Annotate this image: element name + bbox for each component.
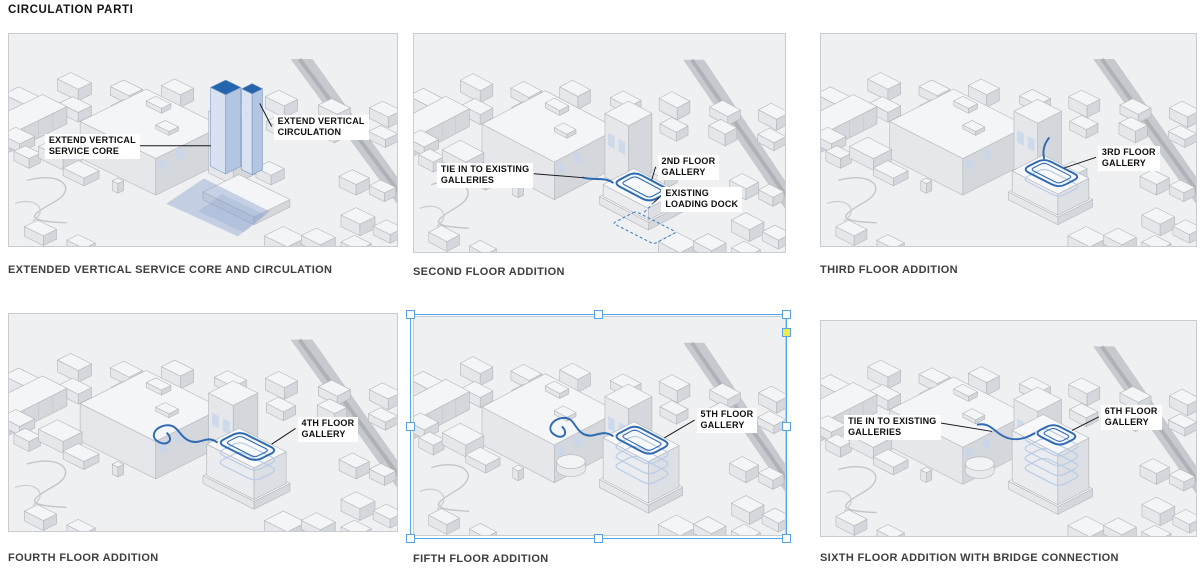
panel-caption: SECOND FLOOR ADDITION bbox=[413, 266, 565, 278]
selection-handle-bottom-right[interactable] bbox=[782, 534, 791, 543]
diagram-label: TIE IN TO EXISTING GALLERIES bbox=[844, 415, 940, 440]
panel-second-floor-addition[interactable]: TIE IN TO EXISTING GALLERIES2ND FLOOR GA… bbox=[413, 33, 786, 253]
panel-caption: THIRD FLOOR ADDITION bbox=[820, 264, 958, 276]
axonometric-diagram-3: 3RD FLOOR GALLERY bbox=[820, 33, 1197, 247]
panel-caption: EXTENDED VERTICAL SERVICE CORE AND CIRCU… bbox=[8, 264, 332, 276]
diagram-label: TIE IN TO EXISTING GALLERIES bbox=[437, 163, 533, 188]
axonometric-diagram-4: 4TH FLOOR GALLERY bbox=[8, 313, 398, 532]
selection-handle-middle-right[interactable] bbox=[782, 422, 791, 431]
diagram-label: 6TH FLOOR GALLERY bbox=[1101, 405, 1162, 430]
panel-third-floor-addition[interactable]: 3RD FLOOR GALLERY THIRD FLOOR ADDITION bbox=[820, 33, 1197, 247]
axonometric-diagram-1: EXTEND VERTICAL SERVICE COREEXTEND VERTI… bbox=[8, 33, 398, 247]
presentation-board: CIRCULATION PARTI EXTEND VERTICAL SERVIC… bbox=[0, 0, 1200, 568]
panel-fourth-floor-addition[interactable]: 4TH FLOOR GALLERY FOURTH FLOOR ADDITION bbox=[8, 313, 398, 532]
panel-caption: FIFTH FLOOR ADDITION bbox=[413, 553, 549, 565]
diagram-label: 3RD FLOOR GALLERY bbox=[1098, 146, 1160, 171]
selection-handle-top-middle[interactable] bbox=[594, 310, 603, 319]
selection-handle-top-right[interactable] bbox=[782, 310, 791, 319]
selection-handle-middle-left[interactable] bbox=[406, 422, 415, 431]
diagram-label: 4TH FLOOR GALLERY bbox=[298, 417, 359, 442]
selection-handle-top-left[interactable] bbox=[406, 310, 415, 319]
selection-handle-bottom-left[interactable] bbox=[406, 534, 415, 543]
axonometric-diagram-6: TIE IN TO EXISTING GALLERIES6TH FLOOR GA… bbox=[820, 320, 1197, 537]
selection-handle-bottom-middle[interactable] bbox=[594, 534, 603, 543]
axon-scene bbox=[821, 34, 1196, 246]
axonometric-diagram-2: TIE IN TO EXISTING GALLERIES2ND FLOOR GA… bbox=[413, 33, 786, 253]
page-title: CIRCULATION PARTI bbox=[8, 4, 133, 16]
panel-extended-vertical-core[interactable]: EXTEND VERTICAL SERVICE COREEXTEND VERTI… bbox=[8, 33, 398, 247]
panel-caption: FOURTH FLOOR ADDITION bbox=[8, 552, 159, 564]
corner-edit-handle[interactable] bbox=[782, 328, 791, 337]
diagram-label: EXISTING LOADING DOCK bbox=[661, 187, 742, 212]
panel-fifth-floor-addition[interactable]: 5TH FLOOR GALLERY FIFTH FLOOR ADDITION bbox=[413, 316, 786, 536]
axon-scene bbox=[414, 34, 785, 252]
axonometric-diagram-5: 5TH FLOOR GALLERY bbox=[413, 316, 786, 536]
diagram-label: 2ND FLOOR GALLERY bbox=[658, 155, 720, 180]
diagram-label: 5TH FLOOR GALLERY bbox=[697, 408, 758, 433]
panel-sixth-floor-addition[interactable]: TIE IN TO EXISTING GALLERIES6TH FLOOR GA… bbox=[820, 320, 1197, 537]
diagram-label: EXTEND VERTICAL CIRCULATION bbox=[274, 115, 369, 140]
diagram-label: EXTEND VERTICAL SERVICE CORE bbox=[45, 134, 140, 159]
panel-caption: SIXTH FLOOR ADDITION WITH BRIDGE CONNECT… bbox=[820, 552, 1119, 564]
